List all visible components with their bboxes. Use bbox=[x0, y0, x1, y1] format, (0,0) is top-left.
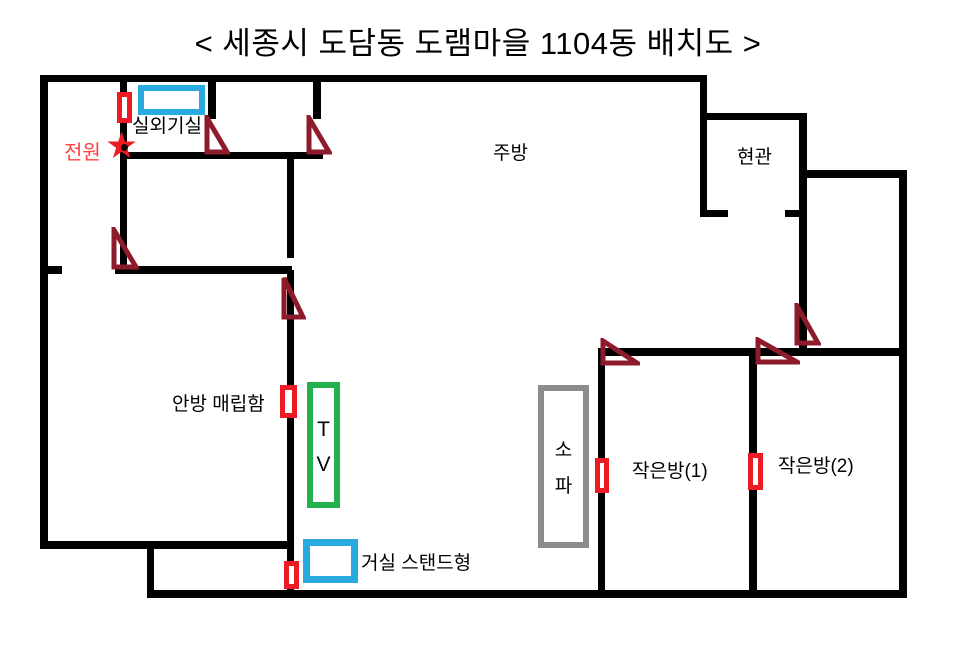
tv-label-t: T bbox=[317, 418, 330, 442]
wall-outdoor-room-right bbox=[208, 75, 216, 119]
wall-right-outer bbox=[899, 170, 907, 598]
blue-box-outdoor-unit bbox=[138, 85, 205, 115]
room-label-kitchen: 주방 bbox=[493, 143, 528, 165]
triangle-marker-icon bbox=[204, 115, 230, 155]
wall-right-room-top bbox=[805, 170, 907, 178]
room-label-small-room-2: 작은방(2) bbox=[778, 456, 854, 478]
sofa-label-pa: 파 bbox=[555, 471, 572, 498]
red-unit-marker-small-room2 bbox=[748, 453, 763, 490]
triangle-marker-icon bbox=[111, 227, 139, 270]
label-living-room-stand-unit: 거실 스탠드형 bbox=[361, 553, 471, 575]
triangle-marker-icon bbox=[794, 303, 821, 346]
tv-label-v: V bbox=[316, 453, 330, 477]
power-label: 전원 bbox=[64, 136, 101, 165]
wall-master-bottom bbox=[40, 541, 290, 549]
sofa-label-so: 소 bbox=[555, 435, 572, 462]
wall-entrance-top bbox=[700, 113, 806, 120]
red-unit-marker-outdoor-room bbox=[117, 92, 132, 123]
sofa-box: 소 파 bbox=[538, 385, 589, 548]
wall-kitchen-left bbox=[313, 75, 321, 119]
wall-master-top bbox=[115, 266, 292, 274]
wall-master-door-stub bbox=[40, 266, 62, 274]
power-star-dot bbox=[121, 144, 128, 151]
room-label-entrance: 현관 bbox=[737, 147, 772, 169]
wall-entrance-left bbox=[700, 75, 707, 217]
red-unit-marker-master bbox=[280, 385, 297, 418]
floor-plan-canvas: < 세종시 도담동 도램마을 1104동 배치도 > T V 소 파 bbox=[0, 0, 956, 653]
triangle-marker-icon bbox=[600, 338, 640, 366]
blue-box-living-stand bbox=[303, 539, 358, 583]
triangle-marker-icon bbox=[306, 115, 332, 155]
wall-entrance-door-left bbox=[700, 210, 728, 217]
room-label-outdoor-unit-room: 실외기실 bbox=[132, 116, 202, 138]
tv-box: T V bbox=[307, 382, 340, 508]
room-label-small-room-1: 작은방(1) bbox=[632, 461, 708, 483]
page-title: < 세종시 도담동 도램마을 1104동 배치도 > bbox=[0, 18, 956, 63]
red-unit-marker-small-room1 bbox=[595, 458, 609, 493]
label-master-embedded-unit: 안방 매립함 bbox=[172, 394, 265, 416]
wall-top-outer bbox=[40, 75, 707, 82]
triangle-marker-icon bbox=[281, 275, 306, 320]
wall-bottom-outer bbox=[147, 590, 907, 598]
red-unit-marker-living bbox=[284, 561, 299, 589]
wall-center-upper bbox=[287, 159, 294, 258]
wall-left-outer bbox=[40, 75, 48, 549]
wall-entrance-door-right bbox=[785, 210, 806, 217]
